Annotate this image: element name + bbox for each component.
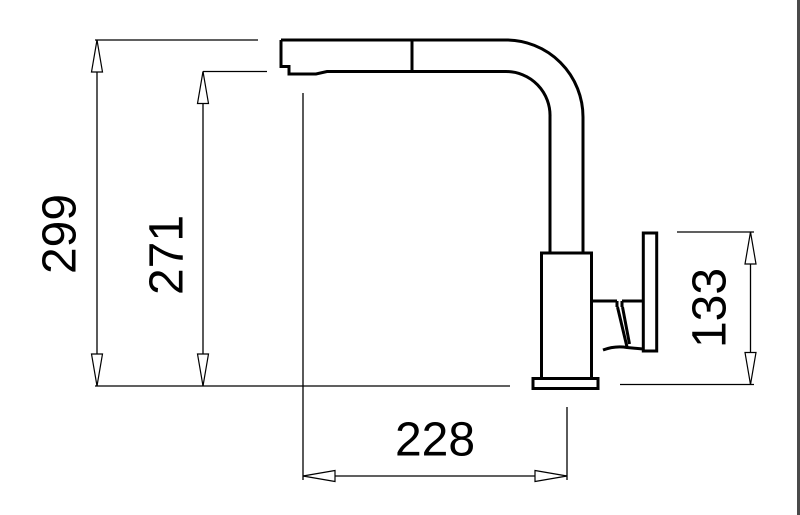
dim-299-label: 299	[34, 194, 87, 274]
base-flange	[533, 379, 598, 389]
cartridge-notch	[617, 301, 622, 307]
drawing-canvas: 299 271 133 228	[0, 0, 800, 515]
dim-271-arrow-bottom	[198, 354, 209, 386]
dim-133-arrow-top	[745, 232, 756, 264]
dim-228-arrow-right	[535, 471, 567, 482]
spray-head-and-aerator	[281, 40, 550, 253]
faucet-dimension-drawing: 299 271 133 228	[0, 0, 800, 515]
faucet-outline	[281, 40, 657, 389]
handle-lever	[643, 233, 656, 351]
dim-271: 271	[141, 72, 268, 387]
dim-271-arrow-top	[198, 72, 209, 104]
dim-228: 228	[303, 93, 567, 482]
dim-228-arrow-left	[303, 471, 335, 482]
dim-133-label: 133	[684, 268, 737, 348]
dim-299-arrow-top	[92, 40, 103, 72]
dim-133: 133	[677, 232, 756, 385]
dim-133-arrow-bottom	[745, 353, 756, 385]
dim-299: 299	[34, 40, 259, 386]
dim-271-label: 271	[141, 215, 194, 295]
dim-228-label: 228	[395, 414, 475, 467]
cartridge-diagonal	[618, 307, 630, 347]
cartridge-joint	[592, 301, 644, 350]
cartridge-bottom-line	[603, 347, 643, 350]
dim-299-arrow-bottom	[92, 354, 103, 386]
faucet-body	[542, 253, 592, 379]
